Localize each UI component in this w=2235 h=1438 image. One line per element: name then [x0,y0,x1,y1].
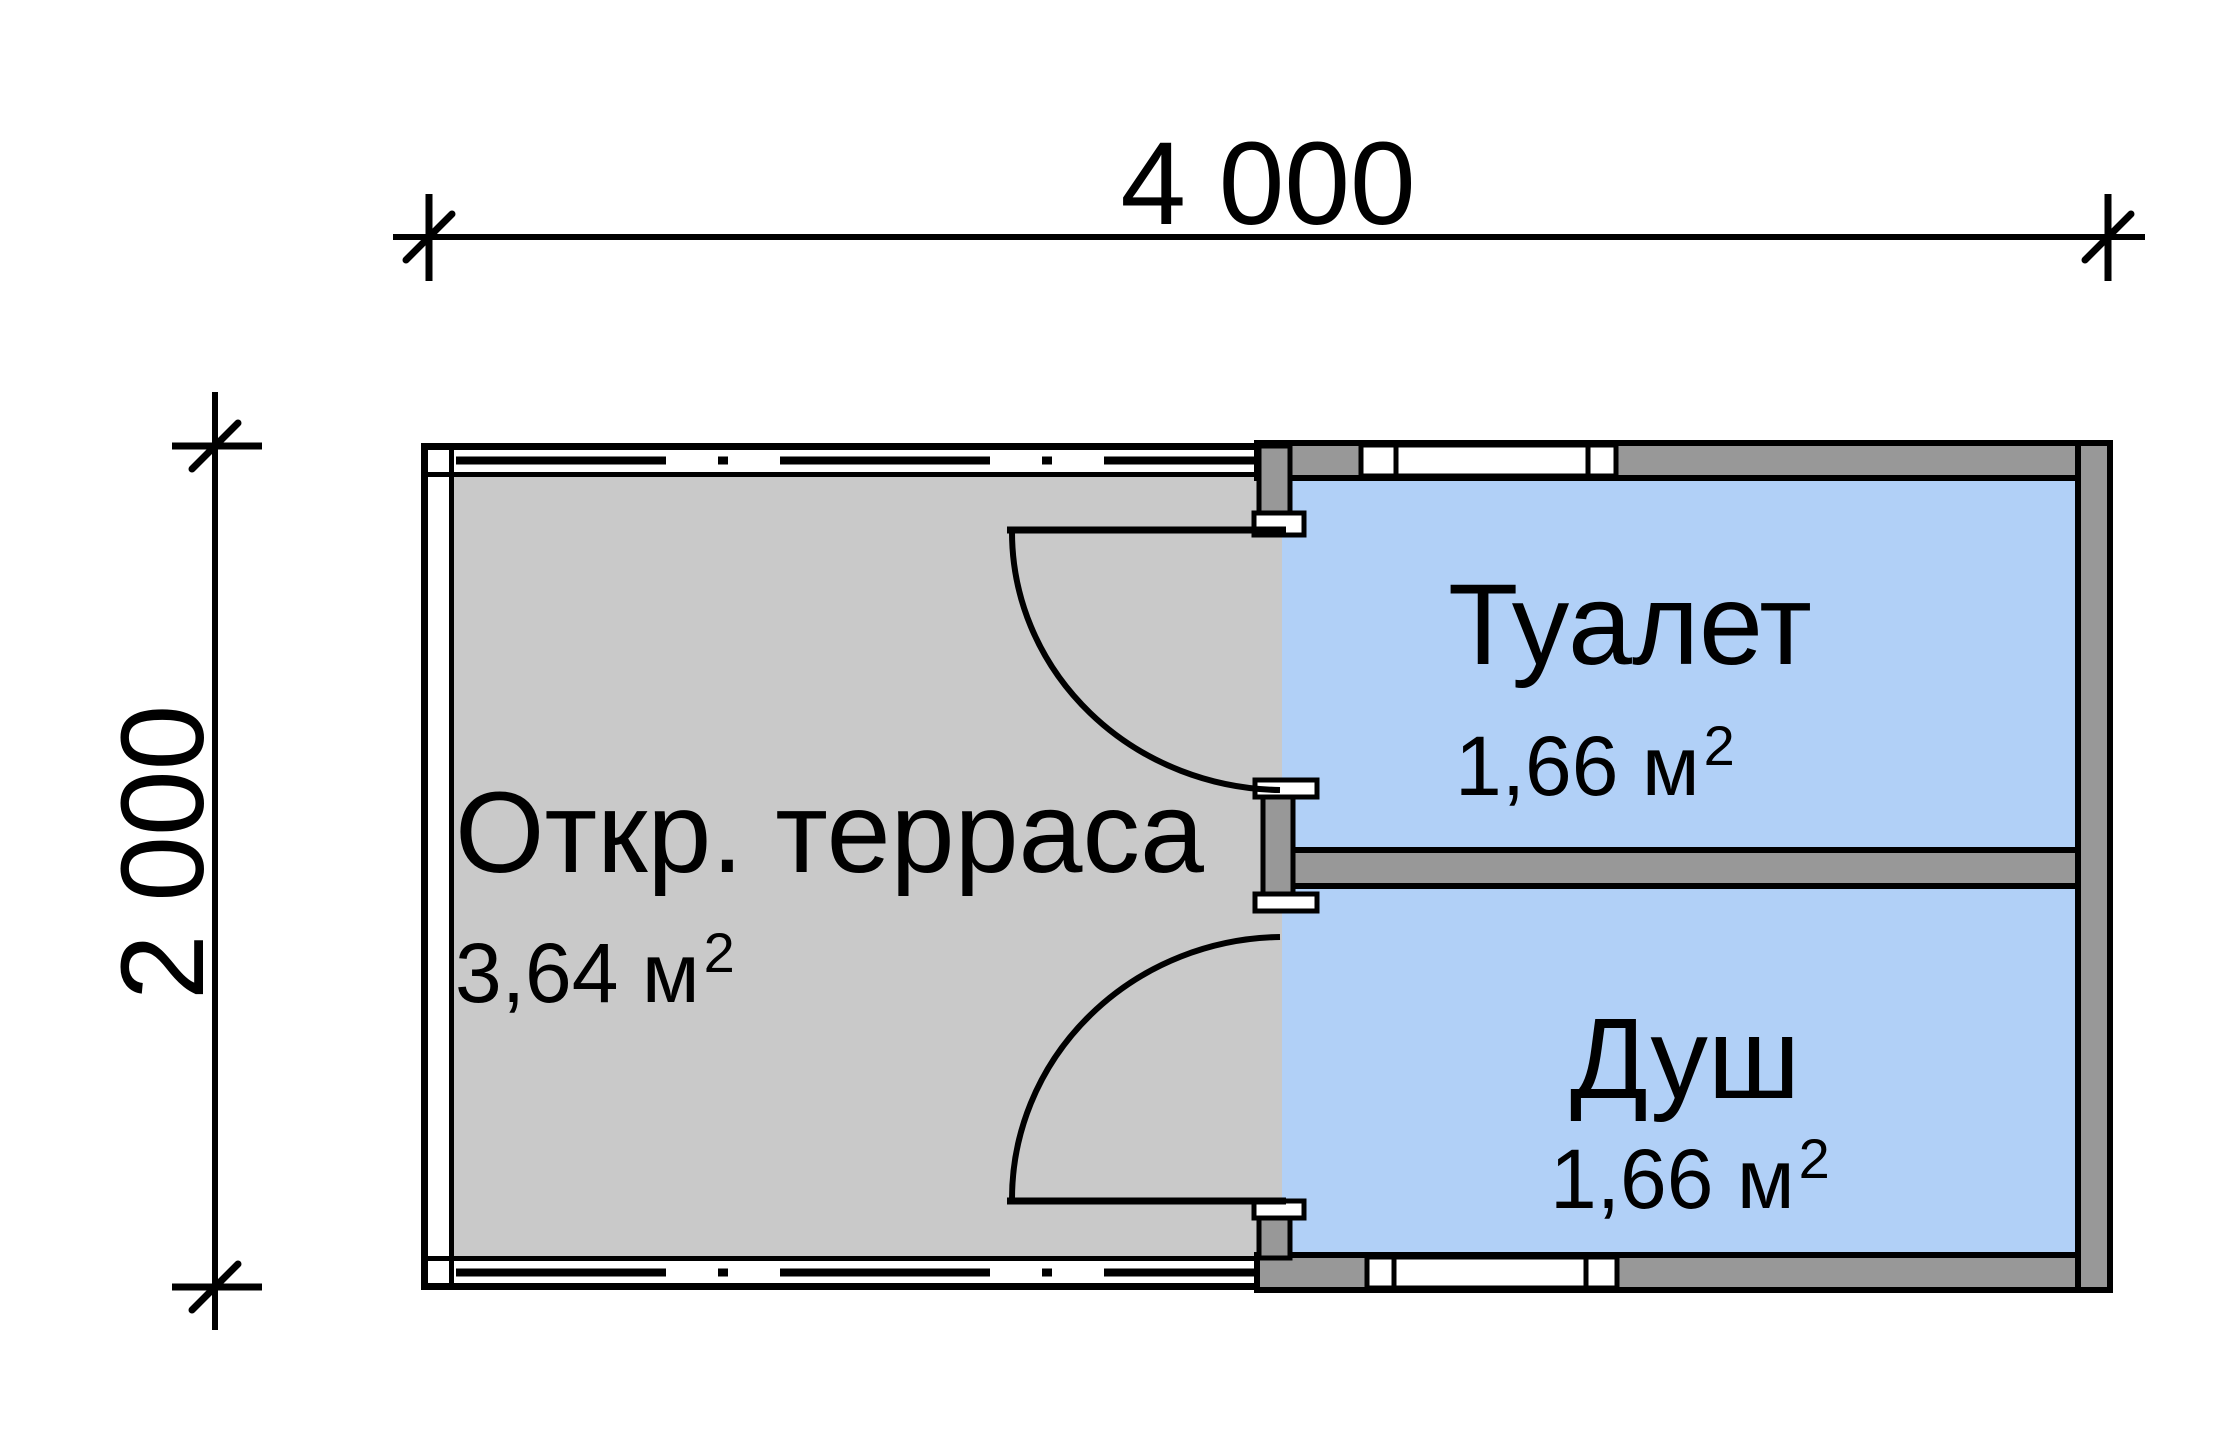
shower-area-label: 1,66 м2 [1550,1127,1830,1226]
window-shower [1367,1257,1617,1288]
door-pier-bottom [1259,1218,1290,1258]
height-dimension-label: 2 000 [97,705,229,1000]
window-toilet [1361,445,1616,476]
terrace-area-label: 3,64 м2 [455,921,735,1020]
toilet-label: Туалет [1448,561,1812,689]
floor-plan-canvas: 4 000 2 000 [0,0,2235,1438]
door-pier-top [1259,446,1290,513]
door-pier-center [1263,796,1293,894]
floor-plan: 4 000 2 000 [0,0,2235,1438]
toilet-area-label: 1,66 м2 [1455,714,1735,813]
width-dimension-label: 4 000 [1120,118,1415,250]
terrace-area-value: 3,64 м [455,926,700,1020]
terrace-label: Откр. терраса [455,769,1204,897]
shower-label: Душ [1570,995,1800,1123]
exterior-wall-right [2078,443,2110,1290]
door-jamb [1255,894,1317,911]
shower-area-superscript: 2 [1799,1127,1830,1190]
toilet-area-superscript: 2 [1704,714,1735,777]
shower-area-value: 1,66 м [1550,1132,1795,1226]
terrace-area-superscript: 2 [704,921,735,984]
toilet-area-value: 1,66 м [1455,719,1700,813]
partition-wall [1284,850,2078,886]
